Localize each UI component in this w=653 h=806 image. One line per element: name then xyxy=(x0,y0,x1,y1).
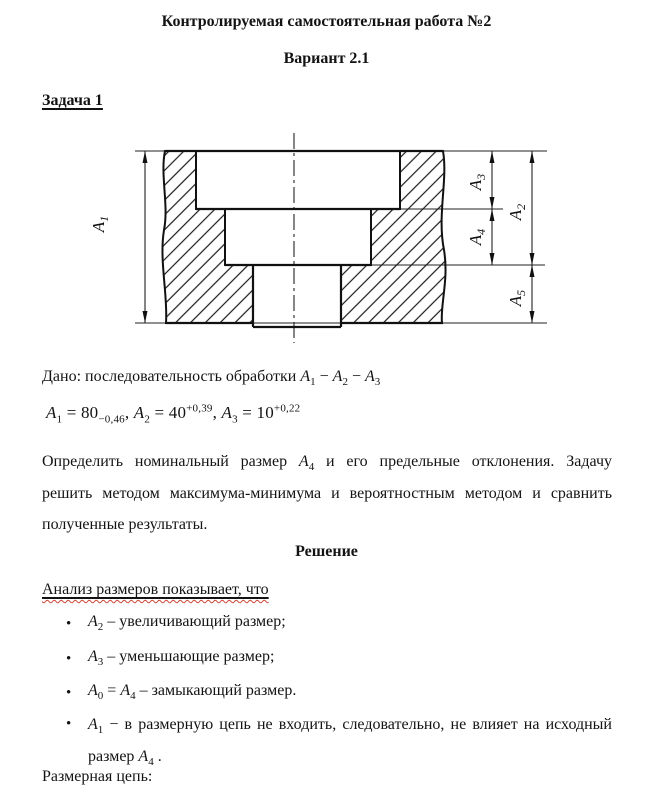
bullet-text: A3 – уменьшающие размер; xyxy=(88,648,612,666)
task-paragraph: Определить номинальный размер A4 и его п… xyxy=(42,446,612,541)
bullet-item-a1: • A1 − в размерную цепь не входить, след… xyxy=(66,709,612,772)
closing-text: Размерная цепь: xyxy=(42,768,152,786)
dimension-a2-a5: A2 A5 xyxy=(506,151,535,323)
dimension-a3-a4: A3 A4 xyxy=(466,151,495,265)
bullet-item-a3: • A3 – уменьшающие размер; xyxy=(66,648,612,670)
task-line-1: Определить номинальный размер A4 и его п… xyxy=(42,446,612,478)
task-label: Задача 1 xyxy=(42,92,103,110)
bullet-icon: • xyxy=(66,613,88,635)
technical-drawing: A1 A3 A4 A2 A5 xyxy=(0,120,653,360)
bullet-icon: • xyxy=(66,709,88,741)
analysis-underlined-text: Анализ размеров показывает, что xyxy=(42,581,269,598)
part-section-left xyxy=(162,151,253,323)
task-line-3: полученные результаты. xyxy=(42,509,612,541)
dim-label-a5: A5 xyxy=(506,290,528,307)
bullet-icon: • xyxy=(66,682,88,704)
document-page: Контролируемая самостоятельная работа №2… xyxy=(0,0,653,806)
dim-label-a2: A2 xyxy=(506,204,528,221)
dimension-a1: A1 xyxy=(89,151,148,323)
dim-label-a4: A4 xyxy=(466,229,488,246)
bullet-item-a2: • A2 – увеличивающий размер; xyxy=(66,613,612,635)
bullet-text: A0 = A4 – замыкающий размер. xyxy=(88,682,612,700)
dim-label-a1: A1 xyxy=(89,216,111,233)
bullet-item-a0: • A0 = A4 – замыкающий размер. xyxy=(66,682,612,704)
task-line-2: решить методом максимума-минимума и веро… xyxy=(42,478,612,510)
analysis-text: Анализ размеров показывает, что xyxy=(42,581,269,599)
part-section-right xyxy=(341,151,446,323)
bullet-text: A2 – увеличивающий размер; xyxy=(88,613,612,631)
bullet-text: A1 − в размерную цепь не входить, следов… xyxy=(88,709,612,772)
dim-label-a3: A3 xyxy=(466,174,488,191)
page-title: Контролируемая самостоятельная работа №2 xyxy=(0,13,653,31)
drawing-svg: A1 A3 A4 A2 A5 xyxy=(0,120,653,355)
given-formula: A1 = 80−0,46, A2 = 40+0,39, A3 = 10+0,22 xyxy=(46,403,300,423)
bullet-icon: • xyxy=(66,648,88,670)
variant-label: Вариант 2.1 xyxy=(0,50,653,68)
given-text: Дано: последовательность обработки A1 − … xyxy=(42,368,380,386)
solution-heading: Решение xyxy=(0,543,653,561)
